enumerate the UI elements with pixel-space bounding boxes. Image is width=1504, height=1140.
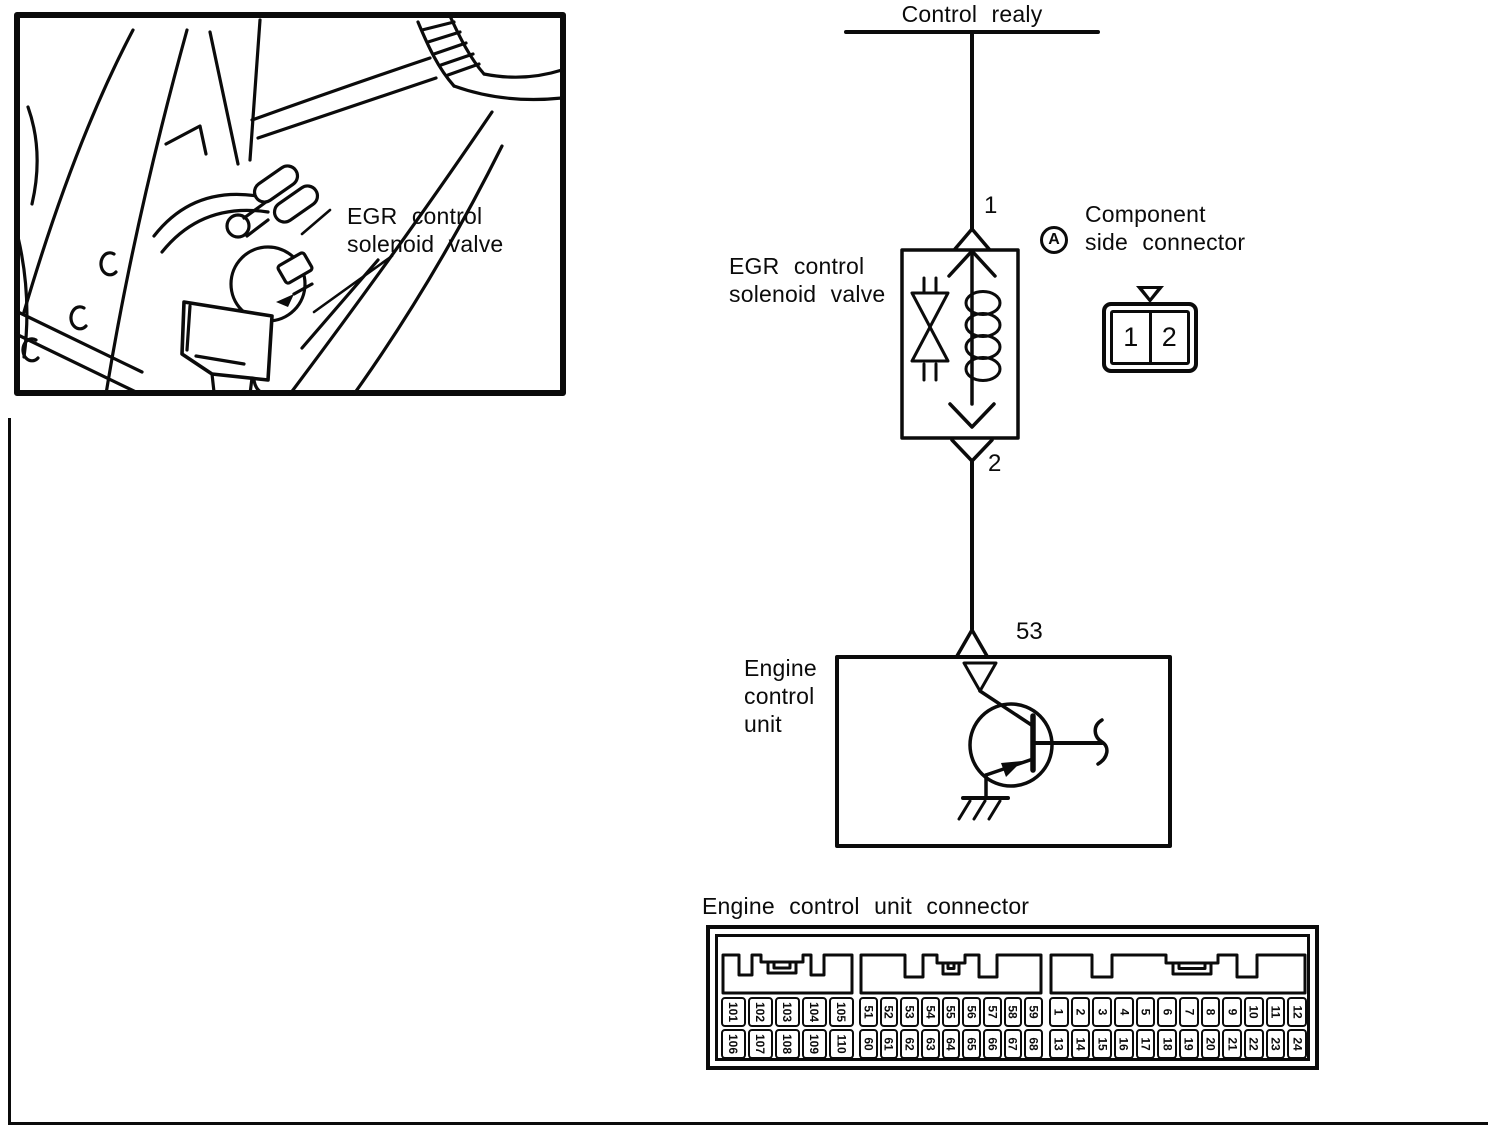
pin-number: 51 — [862, 1005, 874, 1018]
pin-number: 6 — [1161, 1009, 1173, 1016]
pin-cell-6: 6 — [1157, 997, 1177, 1027]
pin-number: 63 — [924, 1037, 936, 1050]
connector-silhouette — [859, 949, 1043, 995]
terminal-chevron-icon — [950, 404, 994, 427]
pin-number: 54 — [924, 1005, 936, 1018]
pin-cell-3: 3 — [1092, 997, 1112, 1027]
pin-cell-54: 54 — [921, 997, 940, 1027]
pin-number: 104 — [809, 1002, 821, 1022]
terminal-fork-icon — [957, 630, 987, 656]
emitter-arrow-icon — [1001, 761, 1022, 777]
pin-cell-106: 106 — [721, 1029, 746, 1059]
pin-number: 107 — [755, 1034, 767, 1054]
pin-row-bottom: 131415161718192021222324 — [1049, 1029, 1307, 1059]
pin-cell-65: 65 — [962, 1029, 981, 1059]
pin-row-bottom: 606162636465666768 — [859, 1029, 1043, 1059]
component-connector-label-line2: side connector — [1085, 228, 1245, 256]
engine-control-unit-box — [837, 657, 1170, 846]
pin-cell-68: 68 — [1024, 1029, 1043, 1059]
pin-cell-58: 58 — [1004, 997, 1023, 1027]
page-border-bottom — [8, 1122, 1488, 1125]
pin-number: 17 — [1140, 1037, 1152, 1050]
illustration-label-line2: solenoid valve — [347, 230, 503, 258]
pin-cell-51: 51 — [859, 997, 878, 1027]
ecu-connector-title: Engine control unit connector — [702, 892, 1029, 920]
pin-cell-4: 4 — [1114, 997, 1134, 1027]
pin-cell-103: 103 — [775, 997, 800, 1027]
pin-cell-53: 53 — [900, 997, 919, 1027]
pin-cell-8: 8 — [1201, 997, 1221, 1027]
egr-valve-label-line2: solenoid valve — [729, 280, 885, 308]
pin-cell-57: 57 — [983, 997, 1002, 1027]
pin-number: 13 — [1053, 1037, 1065, 1050]
transistor-symbol — [970, 691, 1107, 798]
pin-number: 105 — [836, 1002, 848, 1022]
ecu-label-line1: Engine — [744, 654, 817, 682]
wiring-schematic — [700, 0, 1330, 860]
pin-cell-52: 52 — [880, 997, 899, 1027]
pin-number: 10 — [1248, 1005, 1260, 1018]
pin-cell-18: 18 — [1157, 1029, 1177, 1059]
pin-cell-107: 107 — [748, 1029, 773, 1059]
pin-number: 109 — [809, 1034, 821, 1054]
pin-row-top: 515253545556575859 — [859, 997, 1043, 1027]
pin-number: 4 — [1118, 1009, 1130, 1016]
pin-cell-21: 21 — [1222, 1029, 1242, 1059]
illustration-label-line1: EGR control — [347, 202, 482, 230]
terminal-2-label: 2 — [988, 450, 1001, 478]
pin-number: 19 — [1183, 1037, 1195, 1050]
pin-cell-22: 22 — [1244, 1029, 1264, 1059]
pin-number: 1 — [1053, 1009, 1065, 1016]
pin-number: 68 — [1028, 1037, 1040, 1050]
pin-cell-60: 60 — [859, 1029, 878, 1059]
pin-number: 11 — [1270, 1006, 1282, 1019]
pin-number: 102 — [755, 1002, 767, 1022]
pin-number: 58 — [1007, 1005, 1019, 1018]
ecu-connector-inner-frame: 101102103104105 106107108109110 51525354… — [715, 934, 1310, 1061]
pin-number: 106 — [728, 1034, 740, 1054]
component-connector-body: 1 2 — [1110, 310, 1190, 365]
pin-cell-56: 56 — [962, 997, 981, 1027]
pin-row-top: 101102103104105 — [721, 997, 854, 1027]
pin-cell-66: 66 — [983, 1029, 1002, 1059]
pin-number: 2 — [1075, 1009, 1087, 1016]
component-side-connector: 1 2 — [1102, 302, 1198, 373]
pin-number: 9 — [1226, 1009, 1238, 1016]
pin-number: 61 — [883, 1037, 895, 1050]
ecu-connector-group-2: 515253545556575859 606162636465666768 — [859, 949, 1043, 1059]
pin-number: 24 — [1291, 1037, 1303, 1050]
input-triangle-icon — [964, 663, 996, 691]
egr-valve-label-line1: EGR control — [729, 252, 864, 280]
pin-cell-11: 11 — [1266, 997, 1286, 1027]
pin-cell-12: 12 — [1287, 997, 1307, 1027]
pin-cell-62: 62 — [900, 1029, 919, 1059]
valve-symbol — [912, 278, 948, 380]
pin-number: 8 — [1205, 1009, 1217, 1016]
pin-number: 108 — [782, 1034, 794, 1054]
pin-cell-1: 1 — [1049, 997, 1069, 1027]
connector-silhouette — [721, 949, 854, 995]
egr-valve-artwork — [154, 162, 392, 396]
egr-location-illustration — [14, 12, 566, 396]
pin-cell-102: 102 — [748, 997, 773, 1027]
pin-cell-101: 101 — [721, 997, 746, 1027]
pin-cell-19: 19 — [1179, 1029, 1199, 1059]
terminal-1-label: 1 — [984, 192, 997, 220]
pin-cell-15: 15 — [1092, 1029, 1112, 1059]
pin-number: 66 — [986, 1037, 998, 1050]
manual-page: EGR control solenoid valve Control realy — [0, 0, 1504, 1140]
pin-number: 7 — [1183, 1009, 1195, 1016]
pin-cell-20: 20 — [1201, 1029, 1221, 1059]
connector-pin-2: 2 — [1152, 313, 1188, 362]
terminal-53-label: 53 — [1016, 618, 1043, 646]
ecu-label-line3: unit — [744, 710, 782, 738]
ecu-connector-group-3: 123456789101112 131415161718192021222324 — [1049, 949, 1307, 1059]
pin-cell-67: 67 — [1004, 1029, 1023, 1059]
pin-number: 55 — [945, 1005, 957, 1018]
page-border-left — [8, 418, 11, 1124]
label-leader-line — [302, 210, 330, 234]
pin-cell-64: 64 — [942, 1029, 961, 1059]
ecu-connector: 101102103104105 106107108109110 51525354… — [706, 925, 1319, 1070]
ecu-label-line2: control — [744, 682, 814, 710]
pin-row-bottom: 106107108109110 — [721, 1029, 854, 1059]
label-leader-line — [314, 256, 392, 312]
pin-number: 15 — [1096, 1037, 1108, 1050]
component-connector-label-line1: Component — [1085, 200, 1206, 228]
wire-valve-to-ecu — [952, 440, 992, 656]
terminal-chevron-icon — [952, 440, 992, 461]
pin-cell-23: 23 — [1266, 1029, 1286, 1059]
pin-number: 12 — [1291, 1005, 1303, 1018]
pin-number: 65 — [966, 1037, 978, 1050]
pin-cell-105: 105 — [829, 997, 854, 1027]
pin-number: 20 — [1205, 1037, 1217, 1050]
pin-number: 62 — [904, 1037, 916, 1050]
pin-number: 52 — [883, 1005, 895, 1018]
pin-cell-13: 13 — [1049, 1029, 1069, 1059]
egr-solenoid-valve-box — [902, 250, 1018, 438]
pin-cell-2: 2 — [1071, 997, 1091, 1027]
pin-cell-24: 24 — [1287, 1029, 1307, 1059]
pin-cell-9: 9 — [1222, 997, 1242, 1027]
pin-number: 14 — [1075, 1037, 1087, 1050]
pin-cell-63: 63 — [921, 1029, 940, 1059]
pin-number: 22 — [1248, 1037, 1260, 1050]
pin-number: 57 — [986, 1005, 998, 1018]
pin-number: 23 — [1270, 1037, 1282, 1050]
connector-silhouette — [1049, 949, 1307, 995]
pin-cell-109: 109 — [802, 1029, 827, 1059]
pin-number: 21 — [1226, 1037, 1238, 1050]
ecu-connector-group-1: 101102103104105 106107108109110 — [721, 949, 854, 1059]
pin-cell-14: 14 — [1071, 1029, 1091, 1059]
pin-number: 101 — [728, 1002, 740, 1022]
pin-number: 18 — [1161, 1037, 1173, 1050]
pin-cell-7: 7 — [1179, 997, 1199, 1027]
pin-cell-104: 104 — [802, 997, 827, 1027]
pin-number: 67 — [1007, 1037, 1019, 1050]
pin-cell-55: 55 — [942, 997, 961, 1027]
ground-symbol — [959, 798, 1008, 819]
pin-number: 3 — [1096, 1009, 1108, 1016]
pin-number: 16 — [1118, 1037, 1130, 1050]
pin-cell-59: 59 — [1024, 997, 1043, 1027]
pin-row-top: 123456789101112 — [1049, 997, 1307, 1027]
pin-number: 64 — [945, 1037, 957, 1050]
connector-marker-a: A — [1040, 226, 1068, 254]
pin-cell-5: 5 — [1136, 997, 1156, 1027]
pin-cell-10: 10 — [1244, 997, 1264, 1027]
pin-number: 53 — [904, 1005, 916, 1018]
pin-cell-17: 17 — [1136, 1029, 1156, 1059]
pin-cell-61: 61 — [880, 1029, 899, 1059]
connector-pin-1: 1 — [1113, 313, 1152, 362]
pin-cell-16: 16 — [1114, 1029, 1134, 1059]
pin-number: 110 — [835, 1034, 847, 1053]
pin-cell-110: 110 — [829, 1029, 854, 1059]
pin-cell-108: 108 — [775, 1029, 800, 1059]
pin-number: 103 — [782, 1002, 794, 1022]
pin-number: 60 — [862, 1037, 874, 1050]
pin-number: 59 — [1028, 1005, 1040, 1018]
pin-number: 56 — [966, 1005, 978, 1018]
pin-number: 5 — [1140, 1009, 1152, 1016]
connector-key-triangle-icon — [1134, 284, 1166, 304]
